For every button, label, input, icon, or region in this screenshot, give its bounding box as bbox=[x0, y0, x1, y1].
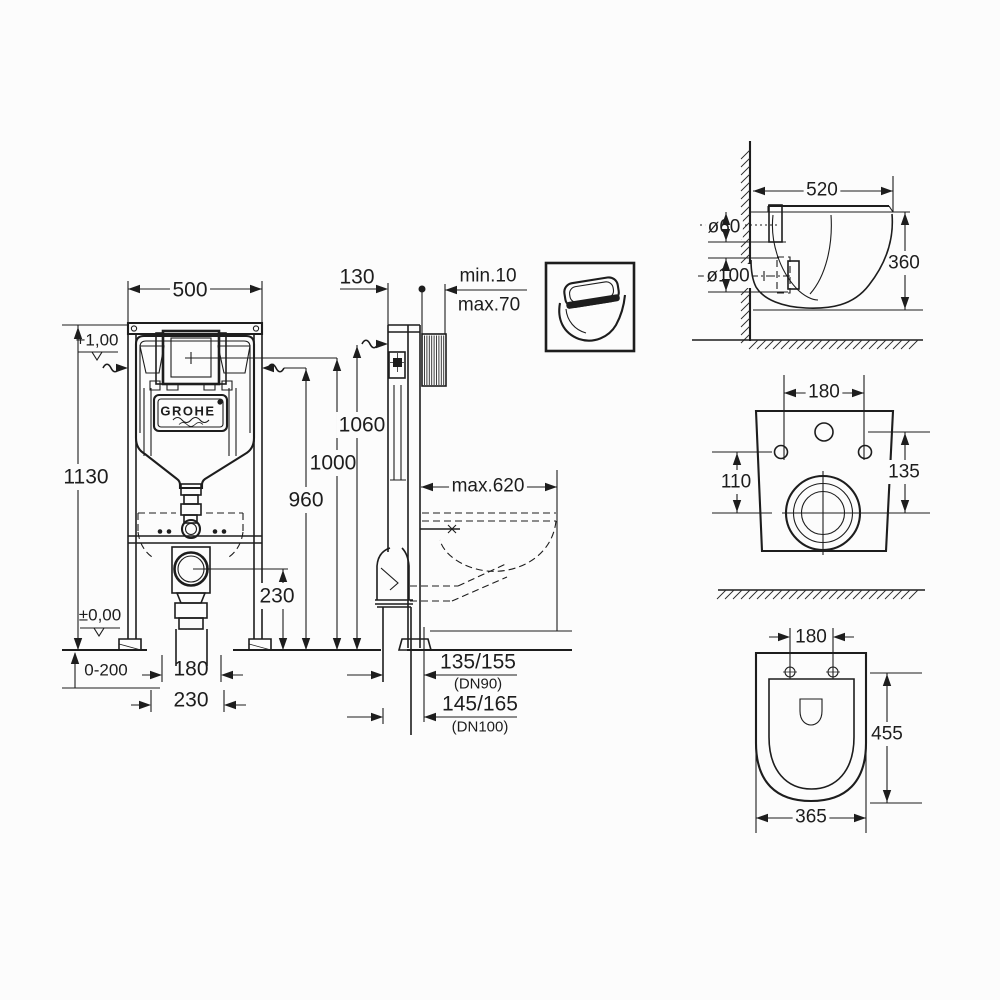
dim-dn90-value: 135/155 bbox=[440, 651, 516, 674]
water-level-squiggle-icon bbox=[362, 340, 378, 348]
dim-pan-length: 455 bbox=[871, 724, 903, 745]
pan-back-view: 180 110 135 bbox=[712, 375, 930, 599]
screw-hole-icon bbox=[253, 326, 258, 331]
dim-pan-depth: 520 bbox=[806, 180, 838, 201]
dashed-pan-outline bbox=[410, 513, 556, 601]
dim-dn100-name: (DN100) bbox=[452, 719, 509, 736]
flush-opening bbox=[800, 699, 822, 725]
dim-pan-height: 360 bbox=[888, 253, 920, 274]
dim-floor-adjust: 0-200 bbox=[84, 661, 127, 680]
dim-dn100-value: 145/165 bbox=[442, 693, 518, 716]
level-mark-icon bbox=[94, 628, 104, 636]
cover-hatching bbox=[425, 336, 444, 386]
filling-valve bbox=[389, 352, 406, 480]
registered-mark-icon bbox=[217, 399, 222, 404]
dim-frame-width: 500 bbox=[172, 279, 207, 302]
dim-wall-max: max.70 bbox=[458, 295, 520, 316]
level-plus-100: +1,00 bbox=[75, 331, 118, 350]
frame-side-view: 130 min.10 max.70 max.620 135/155 (DN90)… bbox=[339, 266, 572, 736]
dim-bolt-spacing-top: 180 bbox=[795, 627, 827, 648]
bolt-hole bbox=[775, 446, 788, 459]
outlet-rings bbox=[782, 471, 864, 555]
installation-drawing: GROHE bbox=[0, 0, 1000, 1000]
pan-top-outline bbox=[756, 653, 866, 801]
dim-frame-height: 1130 bbox=[63, 466, 108, 489]
frame-feet bbox=[119, 639, 271, 650]
level-mark-icon bbox=[92, 352, 102, 360]
dim-pan-width: 365 bbox=[795, 807, 827, 828]
dim-outlet-to-top: 135 bbox=[888, 462, 920, 483]
dim-960: 960 bbox=[288, 489, 323, 512]
dim-drain-height: 230 bbox=[259, 585, 294, 608]
level-zero: ±0,00 bbox=[79, 606, 121, 625]
dim-bolt-spacing: 180 bbox=[808, 382, 840, 403]
reference-dot-icon bbox=[419, 286, 426, 293]
dim-dn90-name: (DN90) bbox=[454, 676, 502, 693]
flush-pipe bbox=[181, 484, 201, 538]
frame-top-bar bbox=[128, 323, 262, 334]
pan-side-view: 520 ø60 ø100 360 bbox=[692, 141, 923, 349]
ground-hatching bbox=[717, 590, 918, 599]
seat-outline bbox=[769, 679, 854, 789]
dim-wall-min: min.10 bbox=[459, 266, 516, 287]
dim-1060: 1060 bbox=[339, 414, 386, 437]
flush-hole bbox=[815, 423, 833, 441]
pan-top-view: 180 455 365 bbox=[756, 627, 922, 834]
dim-outlet-to-bolts: 110 bbox=[721, 472, 751, 493]
dim-pipe-offset: 230 bbox=[173, 689, 208, 712]
flush-stub bbox=[769, 205, 782, 242]
screw-hole-icon bbox=[131, 326, 136, 331]
wall-hatching bbox=[741, 150, 750, 343]
mounting-bolts bbox=[158, 529, 227, 534]
dim-pan-reach: max.620 bbox=[452, 476, 525, 497]
dim-pipe-width: 180 bbox=[173, 658, 208, 681]
pan-icon-box bbox=[546, 263, 634, 351]
frame-foot bbox=[399, 639, 431, 650]
floor-hatching bbox=[749, 340, 918, 349]
brand-label: GROHE bbox=[160, 404, 215, 419]
dim-1000: 1000 bbox=[310, 452, 357, 475]
toilet-icon bbox=[563, 276, 620, 309]
grohe-logo: GROHE bbox=[154, 395, 227, 431]
bolt-hole bbox=[859, 446, 872, 459]
dim-frame-depth: 130 bbox=[339, 266, 374, 289]
